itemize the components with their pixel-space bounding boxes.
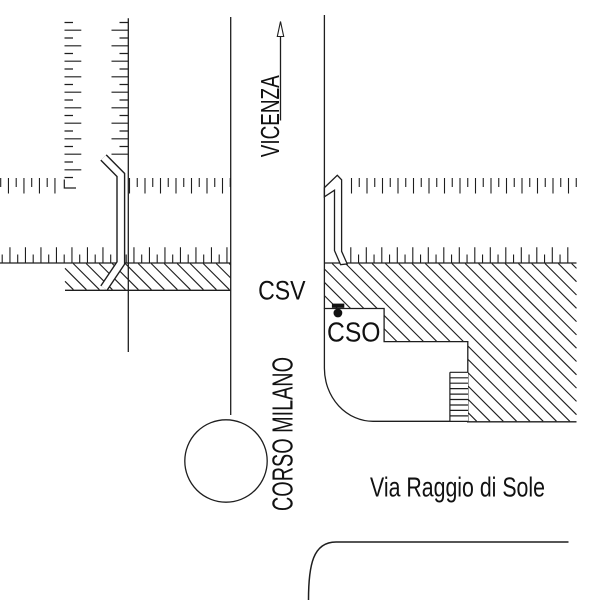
svg-text:CSV: CSV [258,276,306,306]
svg-text:CORSO MILANO: CORSO MILANO [267,357,299,511]
svg-text:CSO: CSO [327,316,381,347]
svg-text:Via Raggio di Sole: Via Raggio di Sole [370,472,545,503]
svg-text:VICENZA: VICENZA [257,75,285,157]
